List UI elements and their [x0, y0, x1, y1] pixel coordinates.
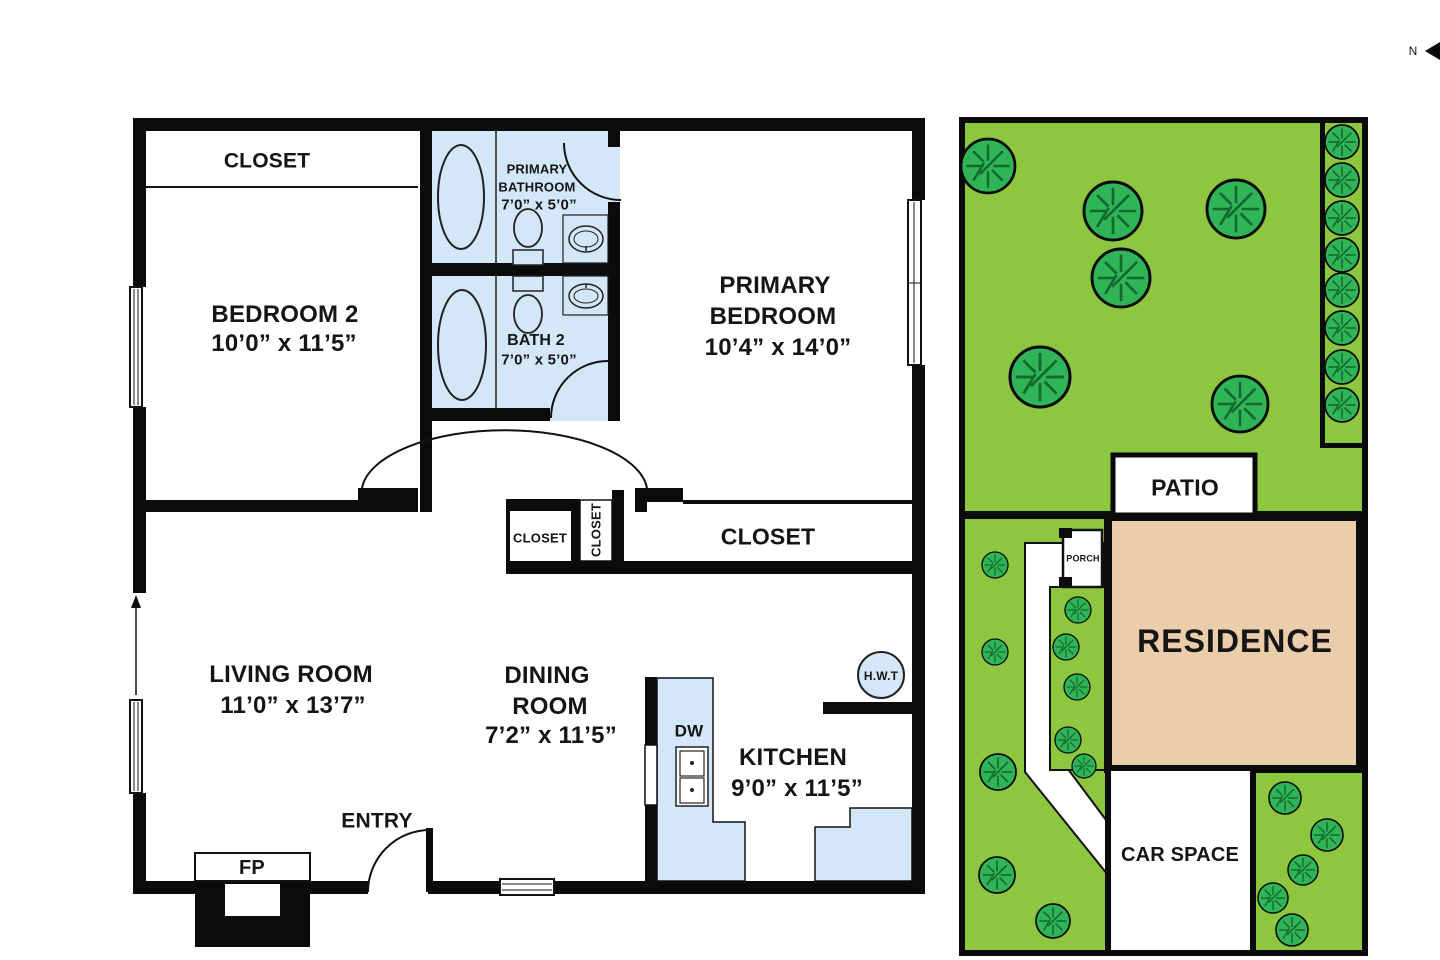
label-primary-bathroom-dims: 7’0” x 5’0”: [501, 198, 577, 213]
bathtub-bath2: [438, 290, 486, 400]
label-bedroom2: BEDROOM 2: [211, 303, 358, 327]
kitchen-pass-through: [645, 745, 657, 805]
site-plan: [961, 120, 1365, 953]
label-primary-bathroom-1: PRIMARY: [507, 163, 568, 176]
label-kitchen-dims: 9’0” x 11’5”: [731, 777, 863, 801]
car-space-border-right: [1250, 771, 1256, 950]
toilet-tank-bath2: [513, 276, 543, 291]
window-bottom: [500, 879, 554, 895]
label-primary-bedroom-2: BEDROOM: [710, 305, 837, 329]
porch-wall-bottom: [1059, 577, 1072, 587]
label-dining-room-1: DINING: [504, 664, 589, 688]
window-left-lower: [130, 700, 142, 793]
label-primary-bedroom-dims: 10’4” x 14’0”: [705, 336, 852, 360]
north-arrow-icon: [1425, 42, 1440, 60]
label-primary-bedroom-1: PRIMARY: [719, 274, 830, 298]
label-closet-small: CLOSET: [513, 532, 567, 545]
label-car-space: CAR SPACE: [1121, 845, 1239, 865]
label-patio: PATIO: [1151, 477, 1219, 500]
label-bedroom2-dims: 10’0” x 11’5”: [211, 332, 356, 356]
hall-arch: [362, 430, 647, 488]
label-bath2-dims: 7’0” x 5’0”: [501, 353, 577, 368]
label-living-room: LIVING ROOM: [209, 663, 373, 687]
bathtub-primary: [438, 145, 484, 249]
label-living-room-dims: 11’0” x 13’7”: [220, 694, 365, 718]
entry-door-leaf: [426, 828, 433, 892]
car-space-border-left: [1105, 771, 1111, 950]
entry-door-arc: [368, 830, 430, 892]
bath2-doorway: [550, 408, 606, 421]
toilet-bowl-primary: [514, 209, 542, 247]
chimney-notch: [225, 884, 280, 916]
toilet-bowl-bath2: [514, 295, 542, 333]
floorplan-page: CLOSET BEDROOM 2 10’0” x 11’5” PRIMARY B…: [0, 0, 1440, 960]
kitchen-counter-right: [815, 808, 912, 881]
label-north: N: [1409, 45, 1418, 57]
primary-bath-doorway: [608, 147, 620, 202]
floorplan-drawing: [0, 0, 1440, 960]
direction-arrow-icon: [131, 595, 141, 695]
label-dishwasher: DW: [675, 723, 704, 740]
label-dining-room-2: ROOM: [512, 695, 587, 719]
window-left-upper: [130, 287, 142, 407]
label-closet-primary: CLOSET: [721, 526, 815, 549]
label-closet-vertical: CLOSET: [590, 503, 603, 557]
label-bath2: BATH 2: [507, 333, 565, 349]
label-water-heater: H.W.T: [864, 670, 898, 682]
label-primary-bathroom-2: BATHROOM: [498, 181, 575, 194]
label-closet-bedroom2: CLOSET: [224, 151, 310, 172]
label-residence: RESIDENCE: [1137, 625, 1333, 657]
hedge-border-line-bottom: [1320, 443, 1365, 448]
toilet-tank-primary: [513, 250, 543, 265]
label-kitchen: KITCHEN: [739, 746, 847, 770]
label-fireplace: FP: [239, 858, 265, 878]
label-entry: ENTRY: [341, 811, 412, 832]
hedge-border-line: [1320, 120, 1325, 448]
label-porch: PORCH: [1066, 555, 1100, 564]
porch-wall-top: [1059, 528, 1072, 538]
label-dining-room-dims: 7’2” x 11’5”: [485, 724, 617, 748]
